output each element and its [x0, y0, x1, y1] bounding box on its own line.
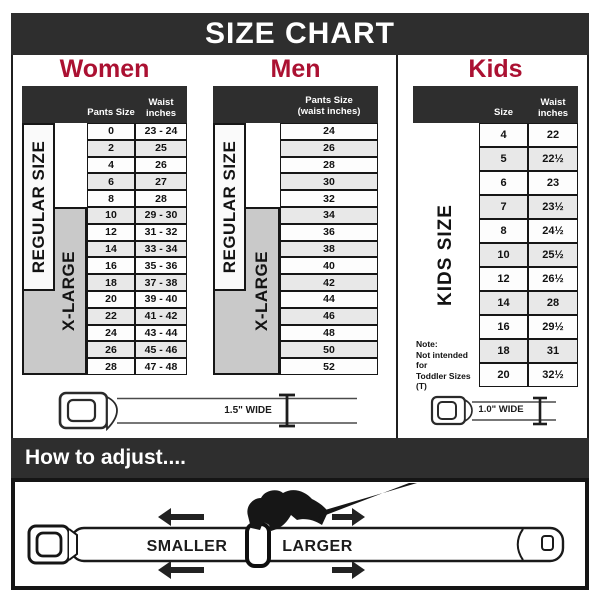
arrow-left-icon — [158, 508, 204, 526]
women-size-table: Pants Size Waist inches X-LARGE REGULAR … — [22, 86, 187, 375]
waist-cell: 23 - 24 — [135, 123, 187, 140]
men-col-pants-size: Pants Size (waist inches) — [280, 96, 378, 117]
size-cell: 10 — [479, 243, 528, 267]
waist-cell: 33 - 34 — [135, 241, 187, 258]
waist-cell: 25½ — [528, 243, 578, 267]
pants-size-cell: 2 — [87, 140, 135, 157]
pants-size-cell: 44 — [280, 291, 378, 308]
pants-size-cell: 34 — [280, 207, 378, 224]
pants-size-cell: 10 — [87, 207, 135, 224]
pants-size-cell: 24 — [87, 325, 135, 342]
waist-cell: 29 - 30 — [135, 207, 187, 224]
waist-cell: 28 — [528, 291, 578, 315]
hand-icon — [247, 483, 417, 531]
waist-cell: 32½ — [528, 363, 578, 387]
women-table-header: Pants Size Waist inches — [22, 86, 187, 123]
arm-line-icon — [318, 483, 417, 518]
waist-cell: 37 - 38 — [135, 274, 187, 291]
size-cell: 20 — [479, 363, 528, 387]
kids-table-header: Size Waist inches — [413, 86, 578, 123]
men-heading: Men — [213, 55, 378, 84]
pants-size-cell: 28 — [87, 358, 135, 375]
pants-size-cell: 6 — [87, 173, 135, 190]
waist-cell: 28 — [135, 190, 187, 207]
women-regular-label: REGULAR SIZE — [29, 141, 49, 274]
men-size-table: Pants Size (waist inches) X-LARGE REGULA… — [213, 86, 378, 375]
arrow-left-icon — [158, 561, 204, 579]
pants-size-cell: 40 — [280, 257, 378, 274]
pants-size-cell: 12 — [87, 224, 135, 241]
waist-cell: 39 - 40 — [135, 291, 187, 308]
size-cell: 6 — [479, 171, 528, 195]
pants-size-cell: 20 — [87, 291, 135, 308]
size-cell: 4 — [479, 123, 528, 147]
women-col-pants-size: Pants Size — [79, 108, 143, 119]
pants-size-cell: 22 — [87, 308, 135, 325]
waist-cell: 47 - 48 — [135, 358, 187, 375]
men-xlarge-label: X-LARGE — [252, 251, 272, 331]
belt-slider-icon — [247, 524, 269, 566]
size-cell: 5 — [479, 147, 528, 171]
waist-cell: 43 - 44 — [135, 325, 187, 342]
size-cell: 12 — [479, 267, 528, 291]
size-chart-infographic: { "title": "SIZE CHART", "colors": { "he… — [0, 0, 600, 600]
pants-size-cell: 14 — [87, 241, 135, 258]
kids-col-size: Size — [479, 108, 528, 119]
waist-cell: 35 - 36 — [135, 257, 187, 274]
waist-cell: 22½ — [528, 147, 578, 171]
men-table-header: Pants Size (waist inches) — [213, 86, 378, 123]
women-col-waist: Waist inches — [135, 98, 187, 119]
pants-size-cell: 52 — [280, 358, 378, 375]
pants-size-cell: 26 — [87, 341, 135, 358]
waist-cell: 31 — [528, 339, 578, 363]
pants-size-cell: 42 — [280, 274, 378, 291]
size-tables-area: Women Men Kids Pants Size Waist inches X… — [11, 55, 589, 438]
adult-belt-illustration — [55, 388, 365, 438]
pants-size-cell: 30 — [280, 173, 378, 190]
adjust-belt-illustration — [15, 482, 585, 586]
pants-size-cell: 32 — [280, 190, 378, 207]
men-regular-label: REGULAR SIZE — [220, 141, 240, 274]
pants-size-cell: 50 — [280, 341, 378, 358]
buckle-icon — [60, 393, 117, 429]
kids-heading: Kids — [413, 55, 578, 84]
women-heading: Women — [22, 55, 187, 84]
size-cell: 14 — [479, 291, 528, 315]
size-cell: 18 — [479, 339, 528, 363]
waist-cell: 26 — [135, 157, 187, 174]
pants-size-cell: 48 — [280, 325, 378, 342]
pants-size-cell: 18 — [87, 274, 135, 291]
waist-cell: 22 — [528, 123, 578, 147]
smaller-label: SMALLER — [137, 538, 237, 556]
buckle-icon — [432, 397, 472, 424]
waist-cell: 23½ — [528, 195, 578, 219]
pants-size-cell: 38 — [280, 241, 378, 258]
waist-cell: 26½ — [528, 267, 578, 291]
waist-cell: 25 — [135, 140, 187, 157]
pants-size-cell: 28 — [280, 157, 378, 174]
buckle-icon — [29, 526, 77, 563]
howto-adjust-heading: How to adjust.... — [11, 438, 589, 478]
waist-cell: 29½ — [528, 315, 578, 339]
waist-cell: 23 — [528, 171, 578, 195]
pants-size-cell: 8 — [87, 190, 135, 207]
waist-cell: 45 - 46 — [135, 341, 187, 358]
adult-belt-width-label: 1.5" WIDE — [218, 405, 278, 416]
kids-belt-width-label: 1.0" WIDE — [473, 404, 529, 415]
pants-size-cell: 46 — [280, 308, 378, 325]
women-xlarge-label: X-LARGE — [59, 251, 79, 331]
kids-col-waist: Waist inches — [528, 98, 578, 119]
page-title: SIZE CHART — [11, 13, 589, 55]
pants-size-cell: 0 — [87, 123, 135, 140]
size-cell: 7 — [479, 195, 528, 219]
pants-size-cell: 26 — [280, 140, 378, 157]
waist-cell: 24½ — [528, 219, 578, 243]
pants-size-cell: 24 — [280, 123, 378, 140]
belt-tip-hole-icon — [542, 536, 553, 550]
howto-adjust-diagram — [11, 478, 589, 590]
waist-cell: 41 - 42 — [135, 308, 187, 325]
kids-note: Note: Not intended for Toddler Sizes (T) — [416, 339, 478, 392]
waist-cell: 27 — [135, 173, 187, 190]
women-regular-range-box: REGULAR SIZE — [22, 123, 55, 291]
pants-size-cell: 16 — [87, 257, 135, 274]
waist-cell: 31 - 32 — [135, 224, 187, 241]
arrow-right-icon — [332, 561, 365, 579]
size-cell: 16 — [479, 315, 528, 339]
size-cell: 8 — [479, 219, 528, 243]
width-measure-icon — [533, 397, 547, 425]
pants-size-cell: 4 — [87, 157, 135, 174]
kids-size-table: Size Waist inches KIDS SIZE Note: Not in… — [413, 86, 578, 387]
pants-size-cell: 36 — [280, 224, 378, 241]
section-divider — [396, 55, 398, 438]
larger-label: LARGER — [270, 538, 365, 556]
kids-size-label: KIDS SIZE — [435, 204, 457, 306]
men-regular-range-box: REGULAR SIZE — [213, 123, 246, 291]
